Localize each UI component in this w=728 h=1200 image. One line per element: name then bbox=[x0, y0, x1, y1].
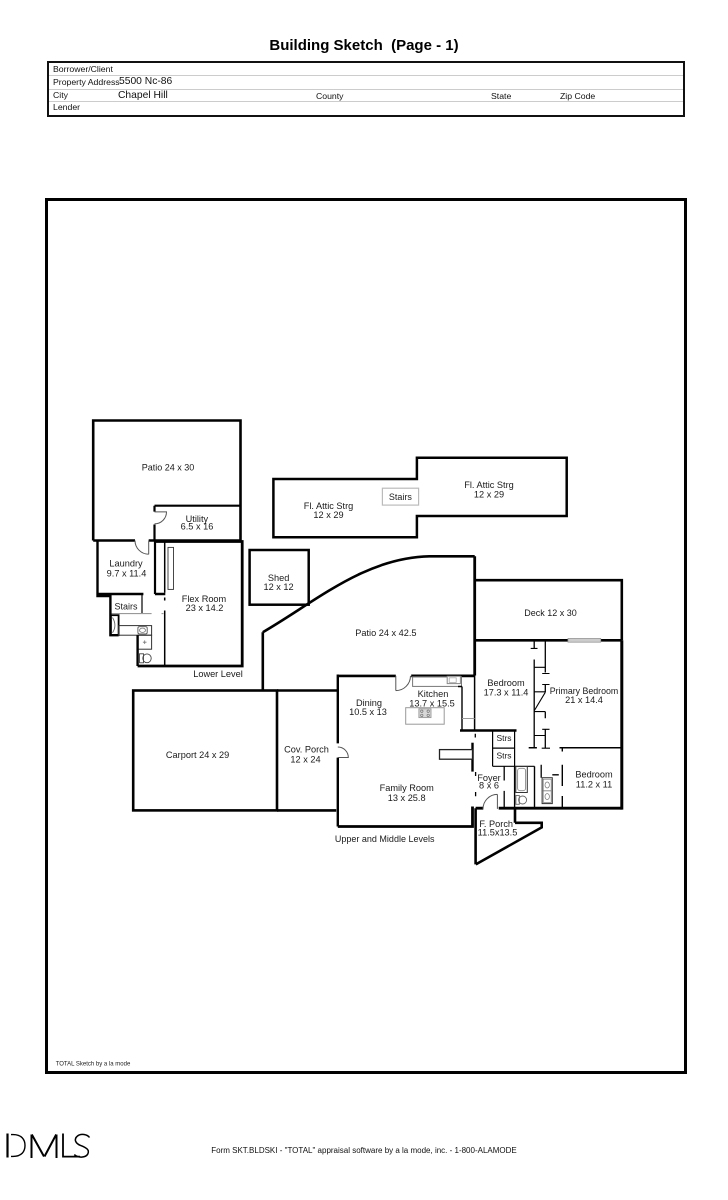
svg-text:Patio 24 x 30: Patio 24 x 30 bbox=[142, 463, 195, 473]
svg-text:11.2 x 11: 11.2 x 11 bbox=[576, 780, 612, 790]
svg-text:Fl. Attic Strg: Fl. Attic Strg bbox=[464, 480, 514, 490]
svg-text:6.5 x 16: 6.5 x 16 bbox=[181, 522, 214, 532]
svg-text:12 x 29: 12 x 29 bbox=[474, 489, 504, 499]
svg-text:10.5 x 13: 10.5 x 13 bbox=[349, 707, 387, 717]
svg-text:12 x 12: 12 x 12 bbox=[264, 582, 294, 592]
svg-text:Stairs: Stairs bbox=[114, 601, 138, 611]
svg-text:17.3 x 11.4: 17.3 x 11.4 bbox=[484, 687, 529, 697]
svg-text:8 x 6: 8 x 6 bbox=[479, 781, 499, 791]
svg-text:Stairs: Stairs bbox=[389, 492, 413, 502]
svg-text:Bedroom: Bedroom bbox=[575, 770, 613, 780]
svg-text:Family Room: Family Room bbox=[380, 783, 434, 793]
svg-text:Carport 24 x 29: Carport 24 x 29 bbox=[166, 750, 229, 760]
svg-text:12 x 24: 12 x 24 bbox=[290, 754, 320, 764]
svg-text:Strs: Strs bbox=[496, 751, 511, 761]
svg-text:Deck 12 x 30: Deck 12 x 30 bbox=[524, 608, 577, 618]
svg-text:TOTAL Sketch by a la mode: TOTAL Sketch by a la mode bbox=[56, 1062, 131, 1068]
svg-text:13 x 25.8: 13 x 25.8 bbox=[388, 793, 426, 803]
svg-text:Laundry: Laundry bbox=[109, 559, 143, 569]
svg-text:13.7 x 15.5: 13.7 x 15.5 bbox=[409, 699, 454, 709]
svg-text:9.7 x 11.4: 9.7 x 11.4 bbox=[107, 568, 147, 578]
svg-text:11.5x13.5: 11.5x13.5 bbox=[478, 828, 518, 838]
svg-text:Strs: Strs bbox=[496, 733, 511, 743]
svg-text:Patio 24 x 42.5: Patio 24 x 42.5 bbox=[355, 628, 416, 638]
svg-text:Upper and Middle Levels: Upper and Middle Levels bbox=[335, 834, 435, 844]
svg-text:Cov. Porch: Cov. Porch bbox=[284, 745, 329, 755]
svg-text:Lower Level: Lower Level bbox=[193, 669, 243, 679]
svg-text:21 x 14.4: 21 x 14.4 bbox=[565, 695, 603, 705]
svg-text:12 x 29: 12 x 29 bbox=[313, 510, 343, 520]
svg-text:23 x 14.2: 23 x 14.2 bbox=[186, 603, 224, 613]
